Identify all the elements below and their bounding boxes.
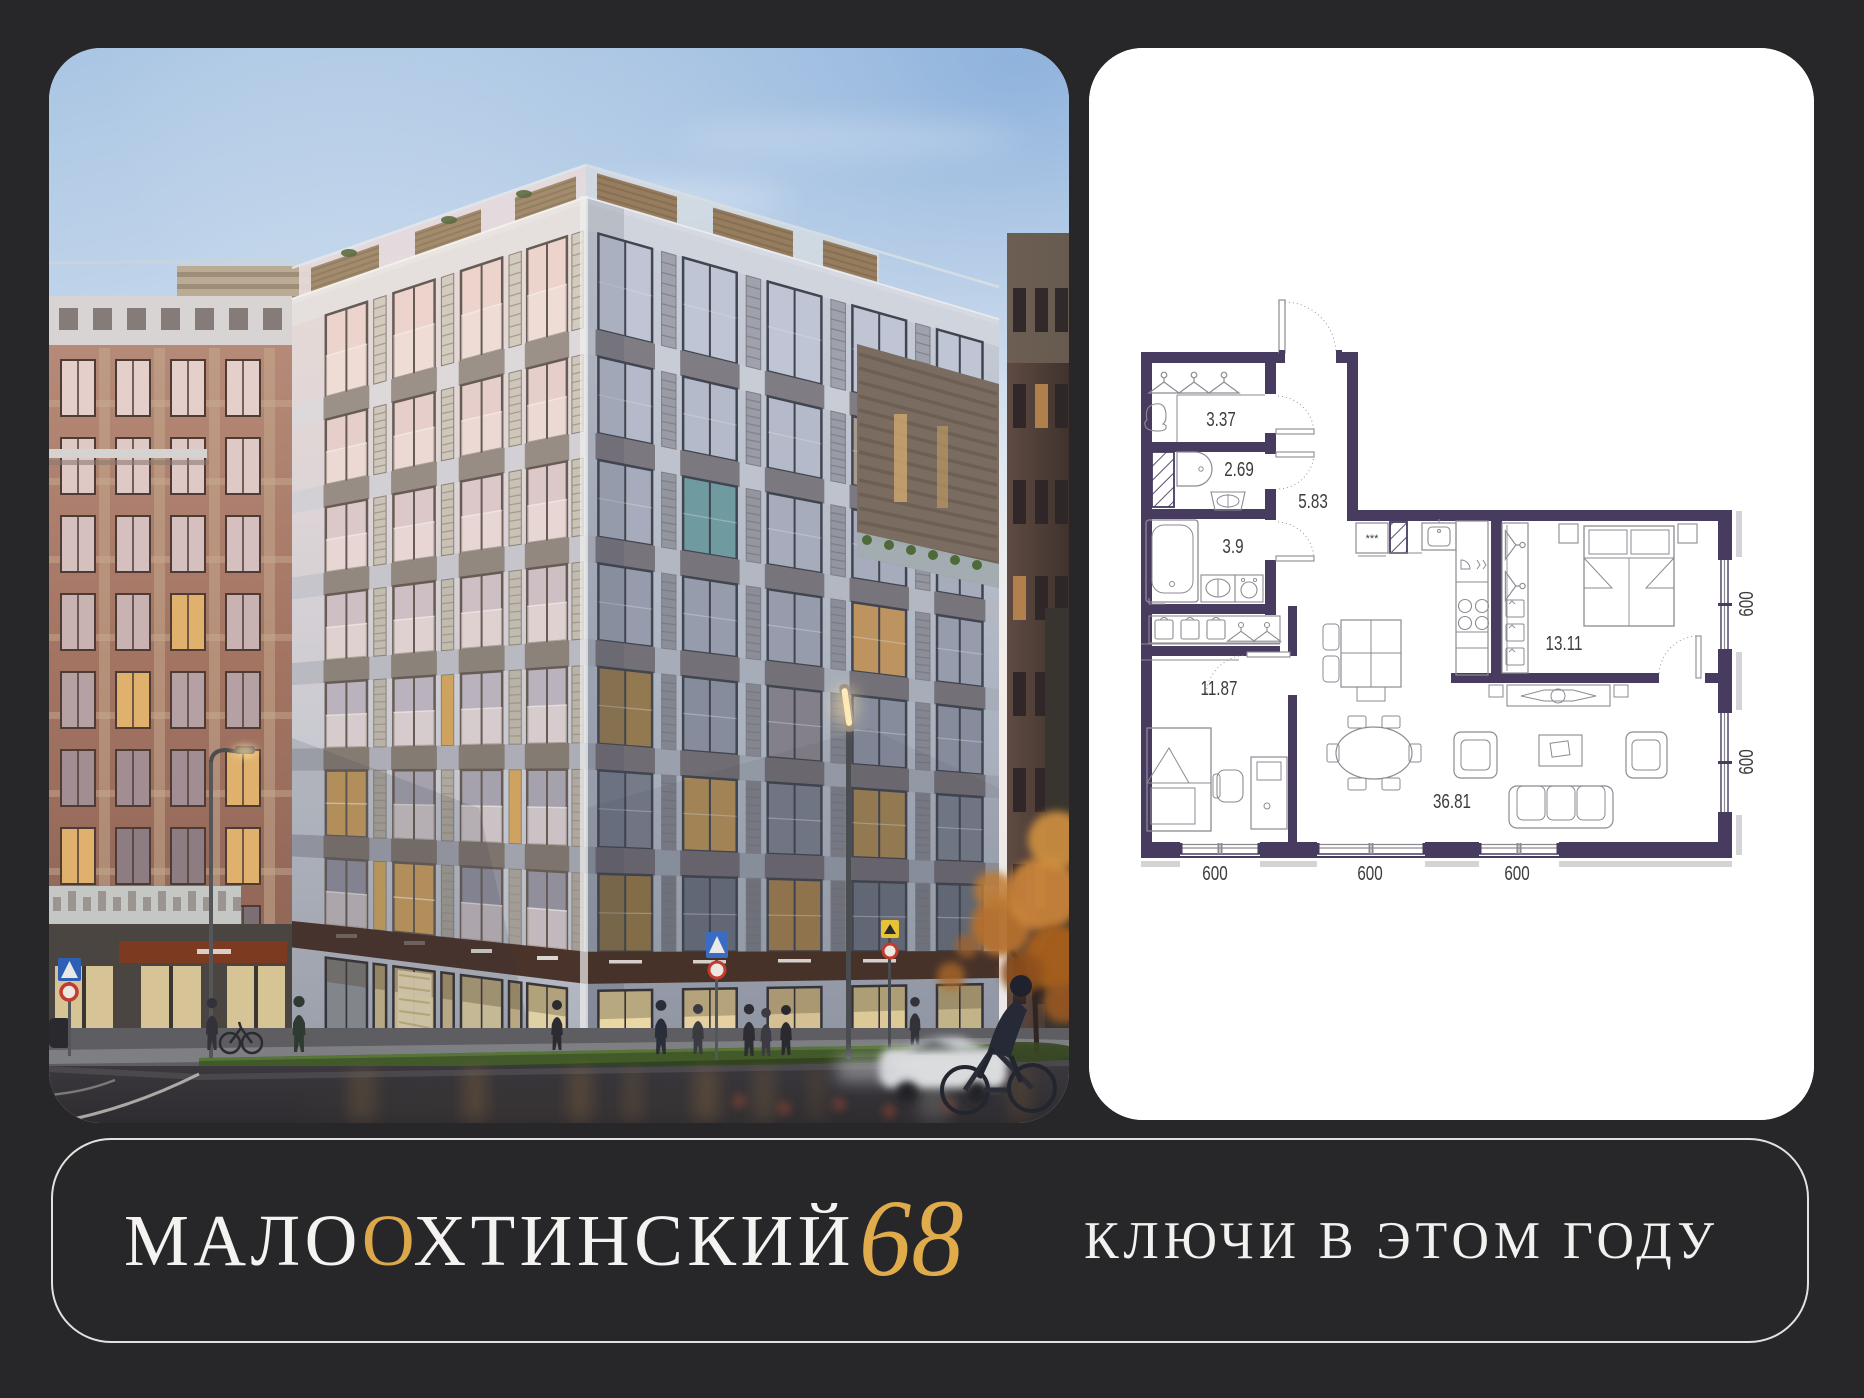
svg-text:3.9: 3.9	[1222, 535, 1243, 558]
svg-text:600: 600	[1735, 591, 1758, 616]
svg-text:***: ***	[1366, 533, 1380, 545]
svg-text:600: 600	[1504, 862, 1529, 885]
svg-text:600: 600	[1357, 862, 1382, 885]
svg-text:3.37: 3.37	[1206, 408, 1236, 431]
svg-text:600: 600	[1735, 749, 1758, 774]
svg-text:600: 600	[1202, 862, 1227, 885]
svg-text:36.81: 36.81	[1433, 790, 1471, 813]
svg-text:5.83: 5.83	[1298, 490, 1328, 513]
svg-text:11.87: 11.87	[1201, 677, 1238, 700]
svg-text:13.11: 13.11	[1546, 632, 1583, 655]
svg-text:2.69: 2.69	[1224, 458, 1254, 481]
